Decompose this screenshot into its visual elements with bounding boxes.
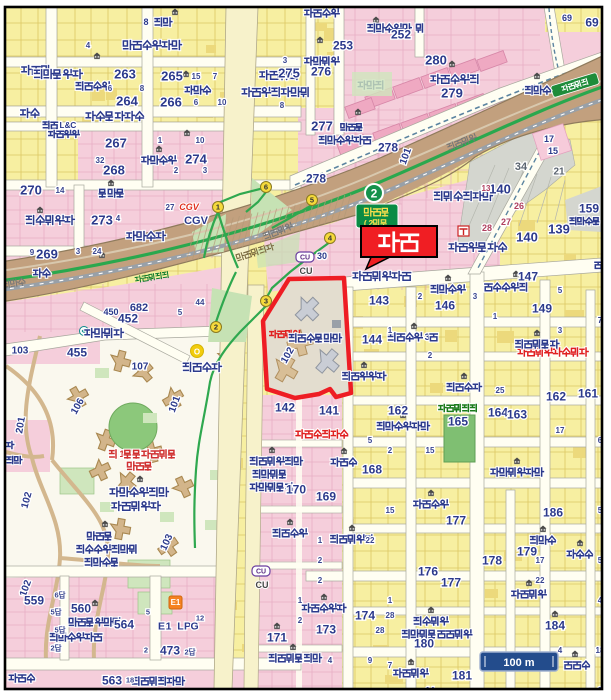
svg-text:2: 2 — [174, 166, 179, 175]
svg-text:170: 170 — [286, 482, 306, 496]
svg-text:2: 2 — [298, 616, 303, 625]
svg-text:280: 280 — [425, 53, 447, 68]
svg-text:265: 265 — [161, 69, 183, 84]
svg-text:5: 5 — [146, 608, 150, 617]
svg-text:279: 279 — [441, 86, 463, 101]
svg-text:2: 2 — [371, 187, 378, 201]
svg-text:141: 141 — [319, 403, 339, 417]
svg-text:CU: CU — [256, 580, 269, 590]
svg-text:4: 4 — [116, 214, 121, 223]
svg-text:560: 560 — [71, 601, 91, 615]
svg-text:179: 179 — [517, 544, 537, 558]
svg-text:159: 159 — [579, 201, 599, 215]
svg-text:28: 28 — [386, 611, 395, 620]
svg-text:6: 6 — [264, 183, 268, 192]
svg-text:146: 146 — [435, 298, 455, 312]
svg-text:1: 1 — [388, 596, 393, 605]
svg-text:9: 9 — [30, 248, 35, 257]
svg-text:107: 107 — [132, 362, 149, 373]
svg-text:8: 8 — [143, 17, 148, 27]
svg-text:3: 3 — [203, 166, 208, 175]
svg-text:22: 22 — [366, 536, 375, 545]
svg-text:186: 186 — [543, 505, 563, 519]
svg-text:12: 12 — [196, 614, 204, 623]
svg-text:263: 263 — [114, 67, 136, 82]
svg-text:CGV: CGV — [179, 202, 200, 212]
svg-text:5: 5 — [368, 436, 373, 445]
svg-text:563: 563 — [102, 673, 122, 687]
svg-text:176: 176 — [418, 564, 438, 578]
svg-text:5답: 5답 — [54, 625, 65, 635]
svg-text:5: 5 — [310, 196, 314, 205]
svg-text:10: 10 — [196, 136, 205, 145]
svg-text:1: 1 — [216, 203, 220, 212]
svg-text:6: 6 — [194, 98, 199, 107]
svg-text:30: 30 — [317, 251, 327, 261]
svg-text:100 m: 100 m — [503, 657, 534, 669]
svg-text:1: 1 — [493, 312, 498, 321]
svg-text:E1: E1 — [171, 598, 181, 607]
svg-text:CU: CU — [300, 266, 313, 276]
svg-text:15: 15 — [386, 506, 395, 515]
svg-text:3: 3 — [283, 56, 288, 65]
svg-text:564: 564 — [114, 617, 134, 631]
svg-text:165: 165 — [448, 414, 468, 428]
svg-text:7: 7 — [388, 661, 393, 670]
svg-text:6: 6 — [108, 84, 113, 93]
svg-text:276: 276 — [311, 64, 331, 78]
svg-text:2답: 2답 — [50, 643, 61, 653]
svg-text:177: 177 — [446, 513, 466, 527]
svg-text:277: 277 — [311, 119, 333, 134]
svg-text:144: 144 — [362, 332, 382, 346]
svg-text:O: O — [194, 348, 200, 357]
svg-text:2: 2 — [418, 292, 423, 301]
svg-text:14: 14 — [56, 186, 65, 195]
svg-text:17: 17 — [536, 556, 545, 565]
svg-text:5답: 5답 — [50, 607, 61, 617]
svg-text:3: 3 — [76, 247, 81, 256]
svg-text:162: 162 — [388, 403, 408, 417]
svg-text:13: 13 — [482, 184, 491, 193]
svg-text:32: 32 — [96, 156, 105, 165]
svg-text:559: 559 — [24, 593, 44, 607]
svg-text:140: 140 — [489, 182, 511, 197]
svg-text:3: 3 — [473, 292, 478, 301]
svg-text:147: 147 — [518, 269, 538, 283]
svg-text:7: 7 — [213, 72, 218, 81]
svg-text:9: 9 — [368, 656, 373, 665]
svg-text:163: 163 — [507, 407, 527, 421]
svg-text:268: 268 — [103, 163, 125, 178]
svg-text:269: 269 — [36, 247, 58, 262]
svg-text:275: 275 — [278, 66, 300, 81]
svg-text:27: 27 — [166, 203, 175, 212]
svg-text:E: E — [158, 621, 165, 633]
svg-text:473: 473 — [160, 643, 180, 657]
svg-text:15: 15 — [192, 72, 201, 81]
svg-text:8: 8 — [280, 101, 285, 110]
svg-text:2: 2 — [428, 351, 433, 360]
svg-text:103: 103 — [12, 346, 29, 357]
svg-text:149: 149 — [532, 301, 552, 315]
svg-text:6답: 6답 — [54, 590, 65, 600]
svg-text:2: 2 — [318, 556, 323, 565]
svg-text:181: 181 — [452, 668, 472, 682]
svg-text:169: 169 — [316, 489, 336, 503]
svg-text:3: 3 — [264, 297, 268, 306]
svg-text:273: 273 — [91, 213, 113, 228]
svg-text:28: 28 — [482, 223, 492, 233]
svg-text:34: 34 — [515, 161, 528, 173]
svg-text:1: 1 — [318, 536, 323, 545]
svg-text:5: 5 — [558, 286, 563, 295]
svg-text:CGV: CGV — [184, 215, 209, 227]
svg-text:21: 21 — [553, 167, 565, 178]
svg-text:252: 252 — [391, 27, 411, 41]
svg-text:28: 28 — [376, 626, 385, 635]
svg-text:253: 253 — [333, 38, 353, 52]
svg-text:17: 17 — [556, 426, 565, 435]
svg-text:455: 455 — [67, 345, 87, 359]
svg-text:278: 278 — [306, 171, 326, 185]
svg-text:140: 140 — [516, 230, 538, 245]
svg-text:2: 2 — [388, 446, 393, 455]
svg-text:267: 267 — [105, 136, 127, 151]
svg-text:1: 1 — [158, 136, 163, 145]
svg-text:452: 452 — [118, 311, 138, 325]
svg-text:264: 264 — [116, 94, 138, 109]
svg-text:17: 17 — [544, 134, 554, 144]
svg-text:164: 164 — [488, 405, 508, 419]
svg-text:139: 139 — [548, 222, 570, 237]
svg-text:1: 1 — [298, 596, 303, 605]
svg-text:27: 27 — [501, 217, 511, 227]
svg-text:25: 25 — [496, 386, 505, 395]
svg-text:274: 274 — [185, 152, 207, 167]
svg-text:69: 69 — [562, 13, 572, 23]
svg-text:162: 162 — [546, 389, 566, 403]
svg-text:3: 3 — [558, 326, 563, 335]
svg-text:142: 142 — [275, 400, 295, 414]
svg-text:69: 69 — [585, 15, 599, 29]
svg-text:184: 184 — [545, 618, 565, 632]
svg-text:8: 8 — [140, 84, 145, 93]
svg-text:26: 26 — [514, 201, 524, 211]
svg-text:270: 270 — [20, 183, 42, 198]
svg-text:4: 4 — [558, 646, 563, 655]
svg-text:5: 5 — [178, 308, 183, 317]
svg-text:C: C — [70, 120, 76, 130]
svg-text:CU: CU — [300, 255, 310, 262]
svg-text:22: 22 — [536, 576, 545, 585]
svg-text:278: 278 — [378, 140, 398, 154]
svg-text:450: 450 — [103, 307, 118, 317]
svg-text:2: 2 — [318, 576, 323, 585]
svg-text:180: 180 — [414, 636, 434, 650]
svg-text:2답: 2답 — [184, 647, 195, 657]
svg-text:177: 177 — [441, 575, 461, 589]
svg-text:1: 1 — [166, 621, 172, 633]
svg-text:178: 178 — [482, 553, 502, 567]
svg-text:266: 266 — [160, 95, 182, 110]
svg-text:168: 168 — [362, 462, 382, 476]
svg-text:171: 171 — [267, 630, 287, 644]
svg-text:143: 143 — [369, 293, 389, 307]
svg-text:18: 18 — [126, 676, 134, 685]
svg-text:15: 15 — [426, 446, 435, 455]
svg-text:44: 44 — [196, 298, 205, 307]
svg-text:CU: CU — [256, 569, 266, 576]
svg-text:174: 174 — [355, 608, 375, 622]
svg-text:15: 15 — [548, 146, 558, 156]
svg-text:10: 10 — [218, 98, 227, 107]
svg-text:4: 4 — [86, 41, 91, 50]
svg-text:4: 4 — [328, 656, 333, 665]
svg-text:173: 173 — [316, 622, 336, 636]
svg-text:1: 1 — [388, 326, 393, 335]
svg-text:24: 24 — [93, 247, 102, 256]
svg-text:2: 2 — [214, 323, 218, 332]
svg-text:2: 2 — [144, 646, 148, 655]
svg-text:161: 161 — [578, 386, 598, 400]
